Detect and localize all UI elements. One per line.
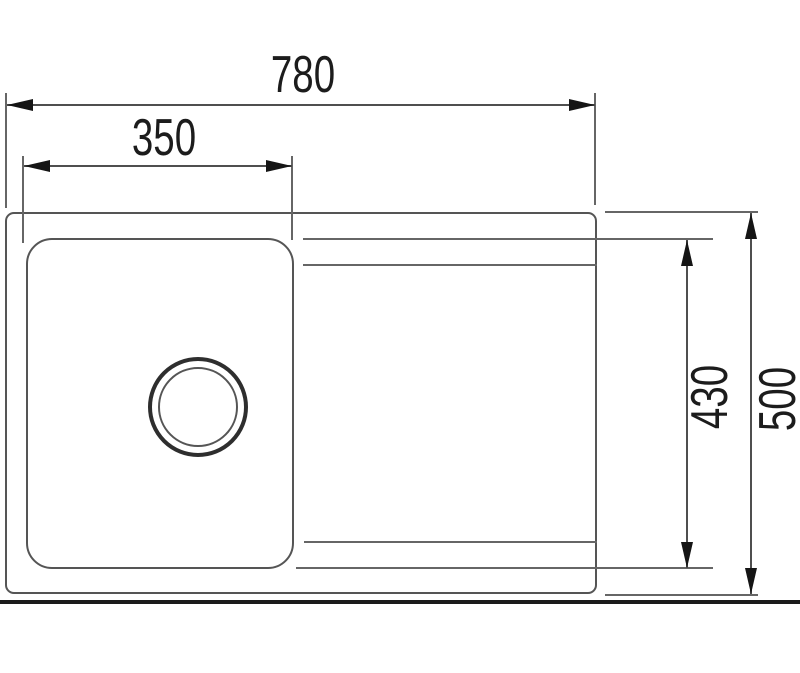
dim-500-arrow-down-icon (745, 568, 757, 594)
dim-430-arrow-up-icon (681, 240, 693, 266)
drainer-groove-third-line (304, 541, 597, 543)
dim-780-arrow-left-icon (7, 99, 33, 111)
dim-350-label: 350 (132, 112, 196, 164)
dim-430-label: 430 (684, 365, 736, 429)
sink-dimension-drawing: 780 350 430 500 (0, 0, 800, 673)
dim-350-arrow-left-icon (24, 160, 50, 172)
dim-780-label: 780 (271, 49, 335, 101)
drain-hole-inner-circle (158, 367, 238, 447)
dim-500-extension-bottom (605, 594, 758, 596)
dim-780-arrow-right-icon (569, 99, 595, 111)
dim-500-arrow-up-icon (745, 213, 757, 239)
dim-430-arrow-down-icon (681, 542, 693, 568)
drawing-baseline (0, 600, 800, 604)
dim-500-label: 500 (752, 367, 800, 431)
dim-500-extension-top (605, 211, 758, 213)
drainer-groove-bottom-line (296, 567, 713, 569)
drainer-groove-second-line (303, 264, 597, 266)
dim-350-arrow-right-icon (266, 160, 292, 172)
dim-780-line (7, 104, 595, 106)
drainer-groove-top-line (303, 238, 713, 240)
